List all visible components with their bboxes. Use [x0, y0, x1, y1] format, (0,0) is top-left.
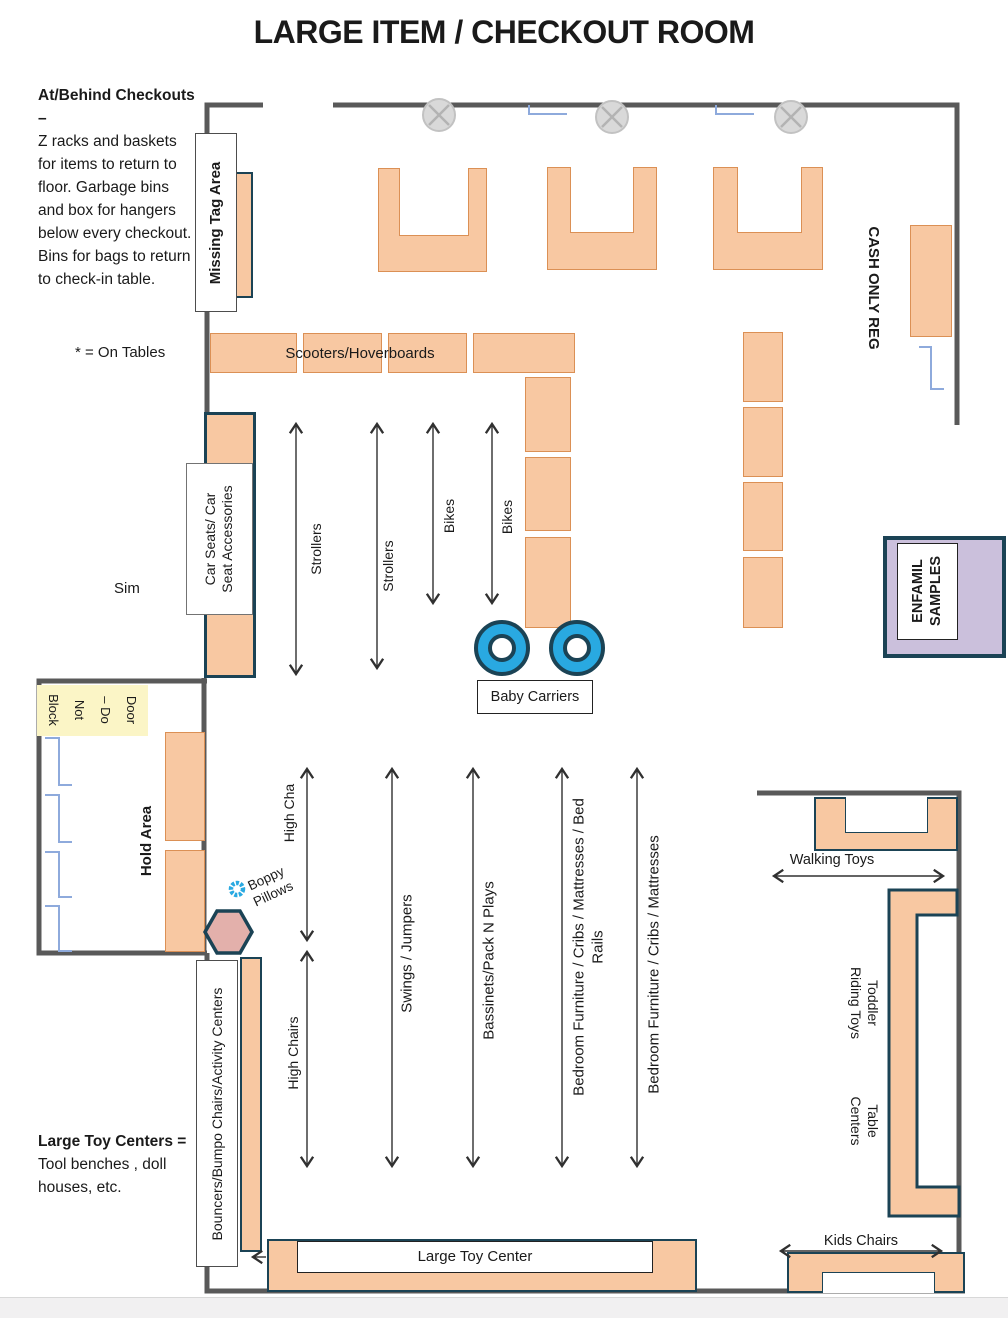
wall-top-left — [207, 105, 263, 135]
aisle-high-chairs-label: High Chairs — [286, 1013, 302, 1093]
aisle-bedroom-1-label: Bedroom Furniture / Cribs / Mattresses /… — [569, 775, 611, 1120]
hold-bracket-2 — [45, 795, 72, 842]
boppy-pillows-label: Boppy Pillows — [236, 858, 304, 915]
bouncers-label: Bouncers/Bumpo Chairs/Activity Centers — [209, 964, 227, 1264]
center-shelf-1 — [525, 377, 571, 452]
door-bracket-cash — [919, 347, 944, 389]
hold-shelf-2 — [165, 850, 205, 952]
center-shelf-2 — [525, 457, 571, 531]
aisle-high-cha-label: High Cha — [282, 781, 298, 845]
large-toy-note: Large Toy Centers = Tool benches , doll … — [38, 1130, 203, 1199]
cash-only-reg-label: CASH ONLY REG — [864, 219, 882, 357]
on-tables-note: * = On Tables — [75, 344, 165, 361]
table-centers-label: Table Centers — [844, 1086, 884, 1156]
baby-carrier-wheels — [476, 622, 603, 674]
baby-carriers-label-box: Baby Carriers — [477, 680, 593, 714]
walking-toys-label: Walking Toys — [762, 851, 902, 869]
missing-tag-label-box: Missing Tag Area — [195, 133, 237, 312]
aisle-strollers-2-label: Strollers — [381, 535, 397, 597]
cash-reg-table — [910, 225, 952, 337]
missing-tag-label: Missing Tag Area — [207, 138, 225, 308]
checkout-note-body: Z racks and baskets for items to return … — [38, 130, 196, 291]
right-shelf-2 — [743, 407, 783, 477]
right-shelf-4 — [743, 557, 783, 628]
car-seats-label: Car Seats/ Car Seat Accessories — [199, 466, 239, 612]
large-toy-center-label: Large Toy Center — [297, 1241, 653, 1273]
large-toy-note-heading: Large Toy Centers = — [38, 1130, 203, 1153]
checkout-counter-2-notch — [570, 167, 634, 233]
car-seats-label-box: Car Seats/ Car Seat Accessories — [186, 463, 253, 615]
walking-toys-table-notch — [845, 797, 928, 833]
door-bracket-top-2 — [716, 105, 754, 114]
checkout-note-heading: At/Behind Checkouts – — [38, 84, 196, 130]
checkout-counter-1-notch — [399, 168, 469, 236]
aisle-bikes-2-label: Bikes — [500, 497, 516, 537]
light-icon — [596, 101, 628, 133]
bouncers-shelf — [240, 957, 262, 1252]
ceiling-lights — [423, 99, 807, 133]
light-icon — [423, 99, 455, 131]
right-shelf-1 — [743, 332, 783, 402]
wheel-icon — [551, 622, 603, 674]
door-do-not-block-label: Door – Do Not Block — [40, 684, 144, 736]
page-title: LARGE ITEM / CHECKOUT ROOM — [0, 14, 1008, 51]
boppy-hexagon-bin — [205, 911, 252, 953]
hold-bracket-4 — [45, 906, 72, 951]
hold-shelf-1 — [165, 732, 205, 841]
toddler-riding-toys-shelf — [889, 890, 959, 1216]
large-toy-note-body: Tool benches , doll houses, etc. — [38, 1153, 203, 1199]
scooters-label: Scooters/Hoverboards — [230, 345, 490, 363]
wheel-icon — [476, 622, 528, 674]
page-bottom-band — [0, 1297, 1008, 1318]
toddler-riding-toys-label: Toddler Riding Toys — [844, 955, 884, 1051]
aisle-swings-label: Swings / Jumpers — [400, 888, 417, 1020]
door-do-not-block-box: Door – Do Not Block — [37, 685, 148, 736]
sim-label: Sim — [114, 580, 140, 597]
hold-bracket-1 — [45, 738, 72, 785]
hold-area-label: Hold Area — [138, 797, 156, 885]
light-icon — [775, 101, 807, 133]
missing-tag-shelf — [235, 172, 253, 298]
kids-chairs-label: Kids Chairs — [791, 1232, 931, 1250]
enfamil-label-box: ENFAMIL SAMPLES — [897, 543, 958, 640]
bouncers-label-box: Bouncers/Bumpo Chairs/Activity Centers — [196, 960, 238, 1267]
floor-plan-page: LARGE ITEM / CHECKOUT ROOM At/Behind Che… — [0, 0, 1008, 1318]
aisle-bedroom-2-label: Bedroom Furniture / Cribs / Mattresses — [647, 820, 664, 1110]
door-bracket-top-1 — [529, 105, 567, 114]
kids-chairs-table-notch — [822, 1272, 935, 1293]
right-shelf-3 — [743, 482, 783, 551]
aisle-bikes-1-label: Bikes — [442, 496, 458, 536]
enfamil-label: ENFAMIL SAMPLES — [907, 547, 947, 635]
aisle-strollers-1-label: Strollers — [309, 518, 325, 580]
center-shelf-3 — [525, 537, 571, 628]
hold-bracket-3 — [45, 852, 72, 897]
checkout-note: At/Behind Checkouts – Z racks and basket… — [38, 84, 196, 291]
checkout-counter-3-notch — [737, 167, 802, 233]
aisle-bassinets-label: Bassinets/Pack N Plays — [482, 872, 499, 1050]
